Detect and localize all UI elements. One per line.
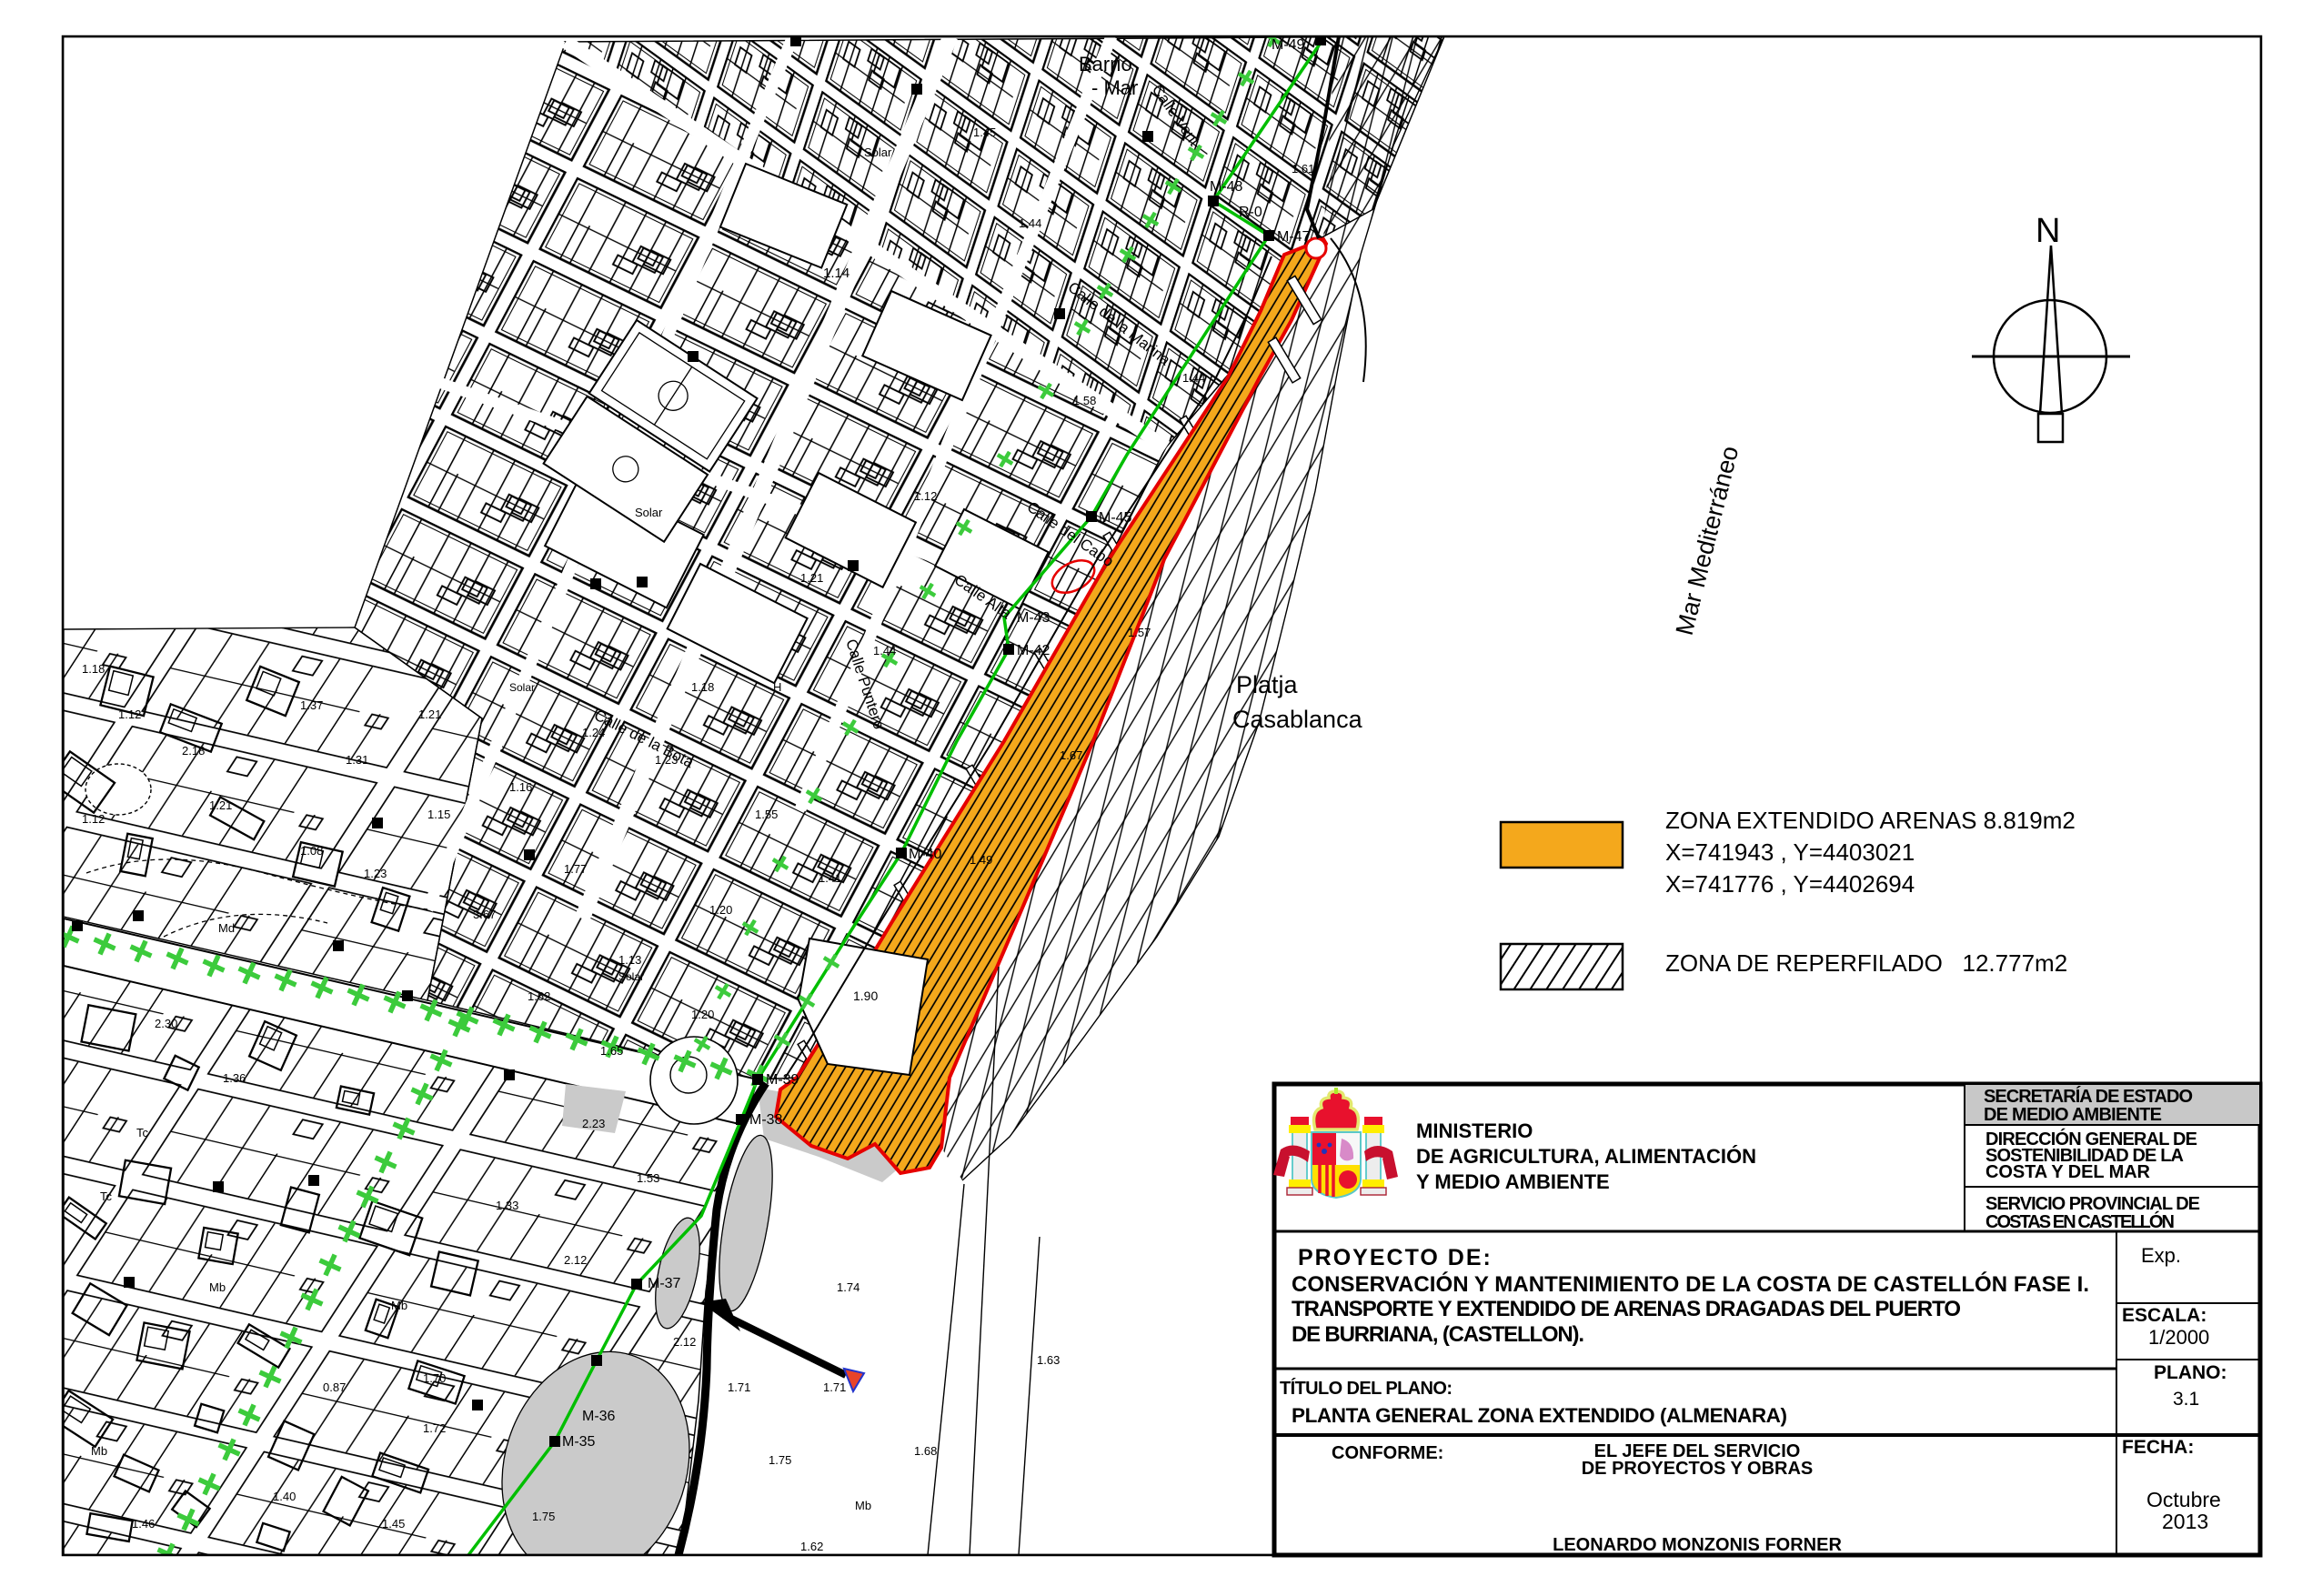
svg-text:1.49: 1.49 bbox=[970, 853, 992, 867]
svg-text:Mb: Mb bbox=[91, 1444, 107, 1458]
svg-text:M-35: M-35 bbox=[562, 1434, 596, 1450]
svg-text:1.18: 1.18 bbox=[691, 680, 714, 694]
svg-text:SECRETARÍA DE ESTADO: SECRETARÍA DE ESTADO bbox=[1984, 1086, 2193, 1107]
svg-text:1.20: 1.20 bbox=[691, 1008, 714, 1021]
svg-text:Solar: Solar bbox=[618, 970, 644, 983]
svg-text:1.16: 1.16 bbox=[509, 780, 532, 794]
svg-text:1.21: 1.21 bbox=[418, 708, 441, 721]
svg-text:1.65: 1.65 bbox=[600, 1044, 623, 1058]
svg-text:Barrio: Barrio bbox=[1079, 53, 1132, 75]
svg-text:1.40: 1.40 bbox=[273, 1490, 296, 1503]
svg-text:2013: 2013 bbox=[2162, 1510, 2208, 1533]
svg-text:Casablanca: Casablanca bbox=[1232, 706, 1363, 733]
svg-text:1.12: 1.12 bbox=[118, 708, 141, 721]
svg-text:Solar: Solar bbox=[635, 506, 663, 519]
svg-text:1.74: 1.74 bbox=[837, 1280, 859, 1294]
svg-text:1.46: 1.46 bbox=[132, 1517, 155, 1531]
svg-text:R-0: R-0 bbox=[1239, 205, 1262, 220]
svg-text:M-37: M-37 bbox=[648, 1276, 681, 1291]
svg-text:ESCALA:: ESCALA: bbox=[2122, 1305, 2207, 1326]
svg-text:Mb: Mb bbox=[391, 1299, 407, 1312]
svg-text:SERVICIO PROVINCIAL DE: SERVICIO PROVINCIAL DE bbox=[1985, 1194, 2200, 1214]
svg-text:1.31: 1.31 bbox=[346, 753, 368, 767]
svg-text:M-42: M-42 bbox=[1017, 643, 1050, 658]
svg-text:ZONA EXTENDIDO ARENAS 8.819m2: ZONA EXTENDIDO ARENAS 8.819m2 bbox=[1665, 807, 2076, 834]
svg-text:1.77: 1.77 bbox=[564, 862, 587, 876]
svg-text:1.57: 1.57 bbox=[1128, 626, 1151, 639]
svg-text:1.12: 1.12 bbox=[82, 812, 105, 826]
svg-text:1.62: 1.62 bbox=[800, 1540, 823, 1553]
svg-text:DE AGRICULTURA, ALIMENTACIÓN: DE AGRICULTURA, ALIMENTACIÓN bbox=[1416, 1145, 1756, 1168]
svg-text:1.14: 1.14 bbox=[823, 266, 849, 281]
svg-text:TÍTULO DEL PLANO:: TÍTULO DEL PLANO: bbox=[1280, 1378, 1453, 1399]
svg-text:1.45: 1.45 bbox=[973, 125, 996, 139]
svg-text:1.44: 1.44 bbox=[1019, 216, 1041, 230]
svg-text:1.36: 1.36 bbox=[223, 1071, 246, 1085]
svg-text:Solar: Solar bbox=[864, 146, 892, 159]
svg-text:1.23: 1.23 bbox=[364, 867, 387, 880]
svg-text:Solar: Solar bbox=[509, 681, 535, 694]
svg-text:1.13: 1.13 bbox=[618, 953, 641, 967]
svg-text:3.67: 3.67 bbox=[473, 908, 496, 921]
svg-text:2.18: 2.18 bbox=[182, 744, 205, 758]
svg-text:M-38: M-38 bbox=[749, 1112, 783, 1128]
svg-text:1.90: 1.90 bbox=[853, 989, 878, 1003]
svg-text:1.08: 1.08 bbox=[300, 844, 323, 858]
svg-text:1.44: 1.44 bbox=[1182, 371, 1205, 385]
svg-text:M-45: M-45 bbox=[1099, 510, 1132, 526]
svg-text:- Mar: - Mar bbox=[1091, 76, 1138, 99]
svg-text:Tc: Tc bbox=[100, 1189, 113, 1203]
svg-text:Platja: Platja bbox=[1236, 671, 1299, 698]
svg-text:1.44: 1.44 bbox=[873, 644, 896, 657]
svg-text:COSTA Y DEL MAR: COSTA Y DEL MAR bbox=[1985, 1162, 2151, 1182]
svg-text:1.15: 1.15 bbox=[427, 808, 450, 821]
svg-text:1.71: 1.71 bbox=[823, 1380, 846, 1394]
svg-text:2.12: 2.12 bbox=[564, 1253, 587, 1267]
svg-text:2.23: 2.23 bbox=[582, 1117, 605, 1130]
svg-text:M-48: M-48 bbox=[1210, 179, 1243, 195]
svg-text:PLANTA GENERAL ZONA EXTENDIDO: PLANTA GENERAL ZONA EXTENDIDO (ALMENARA) bbox=[1292, 1404, 1787, 1427]
svg-text:1.55: 1.55 bbox=[755, 808, 778, 821]
svg-text:Octubre: Octubre bbox=[2146, 1488, 2221, 1511]
svg-text:M-40: M-40 bbox=[909, 847, 942, 862]
svg-text:X=741943 , Y=4403021: X=741943 , Y=4403021 bbox=[1665, 838, 1915, 866]
svg-text:1.75: 1.75 bbox=[769, 1453, 791, 1467]
svg-text:ZONA DE REPERFILADO 12.777m2: ZONA DE REPERFILADO 12.777m2 bbox=[1665, 949, 2067, 977]
svg-text:1.20: 1.20 bbox=[709, 903, 732, 917]
svg-text:M-36: M-36 bbox=[582, 1409, 616, 1424]
svg-text:3.1: 3.1 bbox=[2173, 1389, 2199, 1410]
svg-text:MINISTERIO: MINISTERIO bbox=[1416, 1119, 1533, 1142]
svg-text:0.87: 0.87 bbox=[323, 1380, 346, 1394]
svg-text:1.75: 1.75 bbox=[532, 1510, 555, 1523]
svg-text:1.67: 1.67 bbox=[1060, 748, 1082, 762]
svg-text:COSTAS EN CASTELLÓN: COSTAS EN CASTELLÓN bbox=[1985, 1210, 2175, 1232]
svg-text:1.63: 1.63 bbox=[1037, 1353, 1060, 1367]
svg-text:1.37: 1.37 bbox=[300, 698, 323, 712]
svg-text:CONSERVACIÓN Y MANTENIMIENTO D: CONSERVACIÓN Y MANTENIMIENTO DE LA COSTA… bbox=[1292, 1271, 2089, 1297]
svg-text:Md: Md bbox=[218, 921, 235, 935]
svg-text:1.71: 1.71 bbox=[728, 1380, 750, 1394]
svg-text:M-49: M-49 bbox=[1272, 37, 1305, 53]
svg-text:1.18: 1.18 bbox=[82, 662, 105, 676]
svg-text:Mb: Mb bbox=[855, 1499, 871, 1512]
svg-text:TRANSPORTE Y EXTENDIDO DE AREN: TRANSPORTE Y EXTENDIDO DE ARENAS DRAGADA… bbox=[1292, 1297, 1961, 1321]
svg-text:1.41: 1.41 bbox=[819, 871, 841, 885]
svg-text:H: H bbox=[773, 680, 781, 694]
svg-text:1.62: 1.62 bbox=[528, 989, 550, 1003]
svg-text:1.12: 1.12 bbox=[914, 489, 937, 503]
svg-text:DE MEDIO AMBIENTE: DE MEDIO AMBIENTE bbox=[1984, 1105, 2162, 1125]
svg-text:Mar Mediterráneo: Mar Mediterráneo bbox=[1671, 443, 1744, 637]
svg-text:1.45: 1.45 bbox=[382, 1517, 405, 1531]
svg-text:M-47: M-47 bbox=[1277, 229, 1311, 245]
svg-text:LEONARDO MONZONIS FORNER: LEONARDO MONZONIS FORNER bbox=[1553, 1535, 1842, 1555]
svg-text:2.30: 2.30 bbox=[155, 1017, 177, 1030]
svg-text:1/2000: 1/2000 bbox=[2148, 1326, 2209, 1349]
svg-text:DE PROYECTOS Y OBRAS: DE PROYECTOS Y OBRAS bbox=[1582, 1459, 1814, 1479]
svg-text:2.12: 2.12 bbox=[673, 1335, 696, 1349]
svg-text:Y MEDIO AMBIENTE: Y MEDIO AMBIENTE bbox=[1416, 1170, 1610, 1193]
svg-text:Tc: Tc bbox=[136, 1126, 149, 1139]
svg-text:M-39: M-39 bbox=[766, 1072, 799, 1088]
svg-text:Mb: Mb bbox=[209, 1280, 226, 1294]
svg-text:DE BURRIANA, (CASTELLON).: DE BURRIANA, (CASTELLON). bbox=[1292, 1322, 1584, 1347]
svg-text:1.61: 1.61 bbox=[1292, 162, 1314, 176]
svg-text:1.21: 1.21 bbox=[800, 571, 823, 585]
svg-text:PLANO:: PLANO: bbox=[2154, 1362, 2227, 1383]
svg-text:1.68: 1.68 bbox=[914, 1444, 937, 1458]
svg-text:N: N bbox=[2036, 212, 2060, 250]
svg-text:1.72: 1.72 bbox=[423, 1421, 446, 1435]
svg-text:1.58: 1.58 bbox=[1073, 394, 1096, 407]
svg-text:M-43: M-43 bbox=[1017, 610, 1050, 626]
svg-text:1.21: 1.21 bbox=[209, 798, 232, 812]
svg-text:1.33: 1.33 bbox=[496, 1199, 518, 1212]
svg-text:FECHA:: FECHA: bbox=[2122, 1437, 2194, 1458]
svg-text:X=741776 , Y=4402694: X=741776 , Y=4402694 bbox=[1665, 870, 1915, 898]
svg-text:1.53: 1.53 bbox=[637, 1171, 659, 1185]
svg-text:CONFORME:: CONFORME: bbox=[1332, 1443, 1443, 1463]
svg-text:Exp.: Exp. bbox=[2141, 1244, 2181, 1267]
svg-text:1.24: 1.24 bbox=[582, 726, 605, 739]
svg-text:1.70: 1.70 bbox=[423, 1371, 446, 1385]
svg-text:PROYECTO DE:: PROYECTO DE: bbox=[1298, 1245, 1493, 1270]
